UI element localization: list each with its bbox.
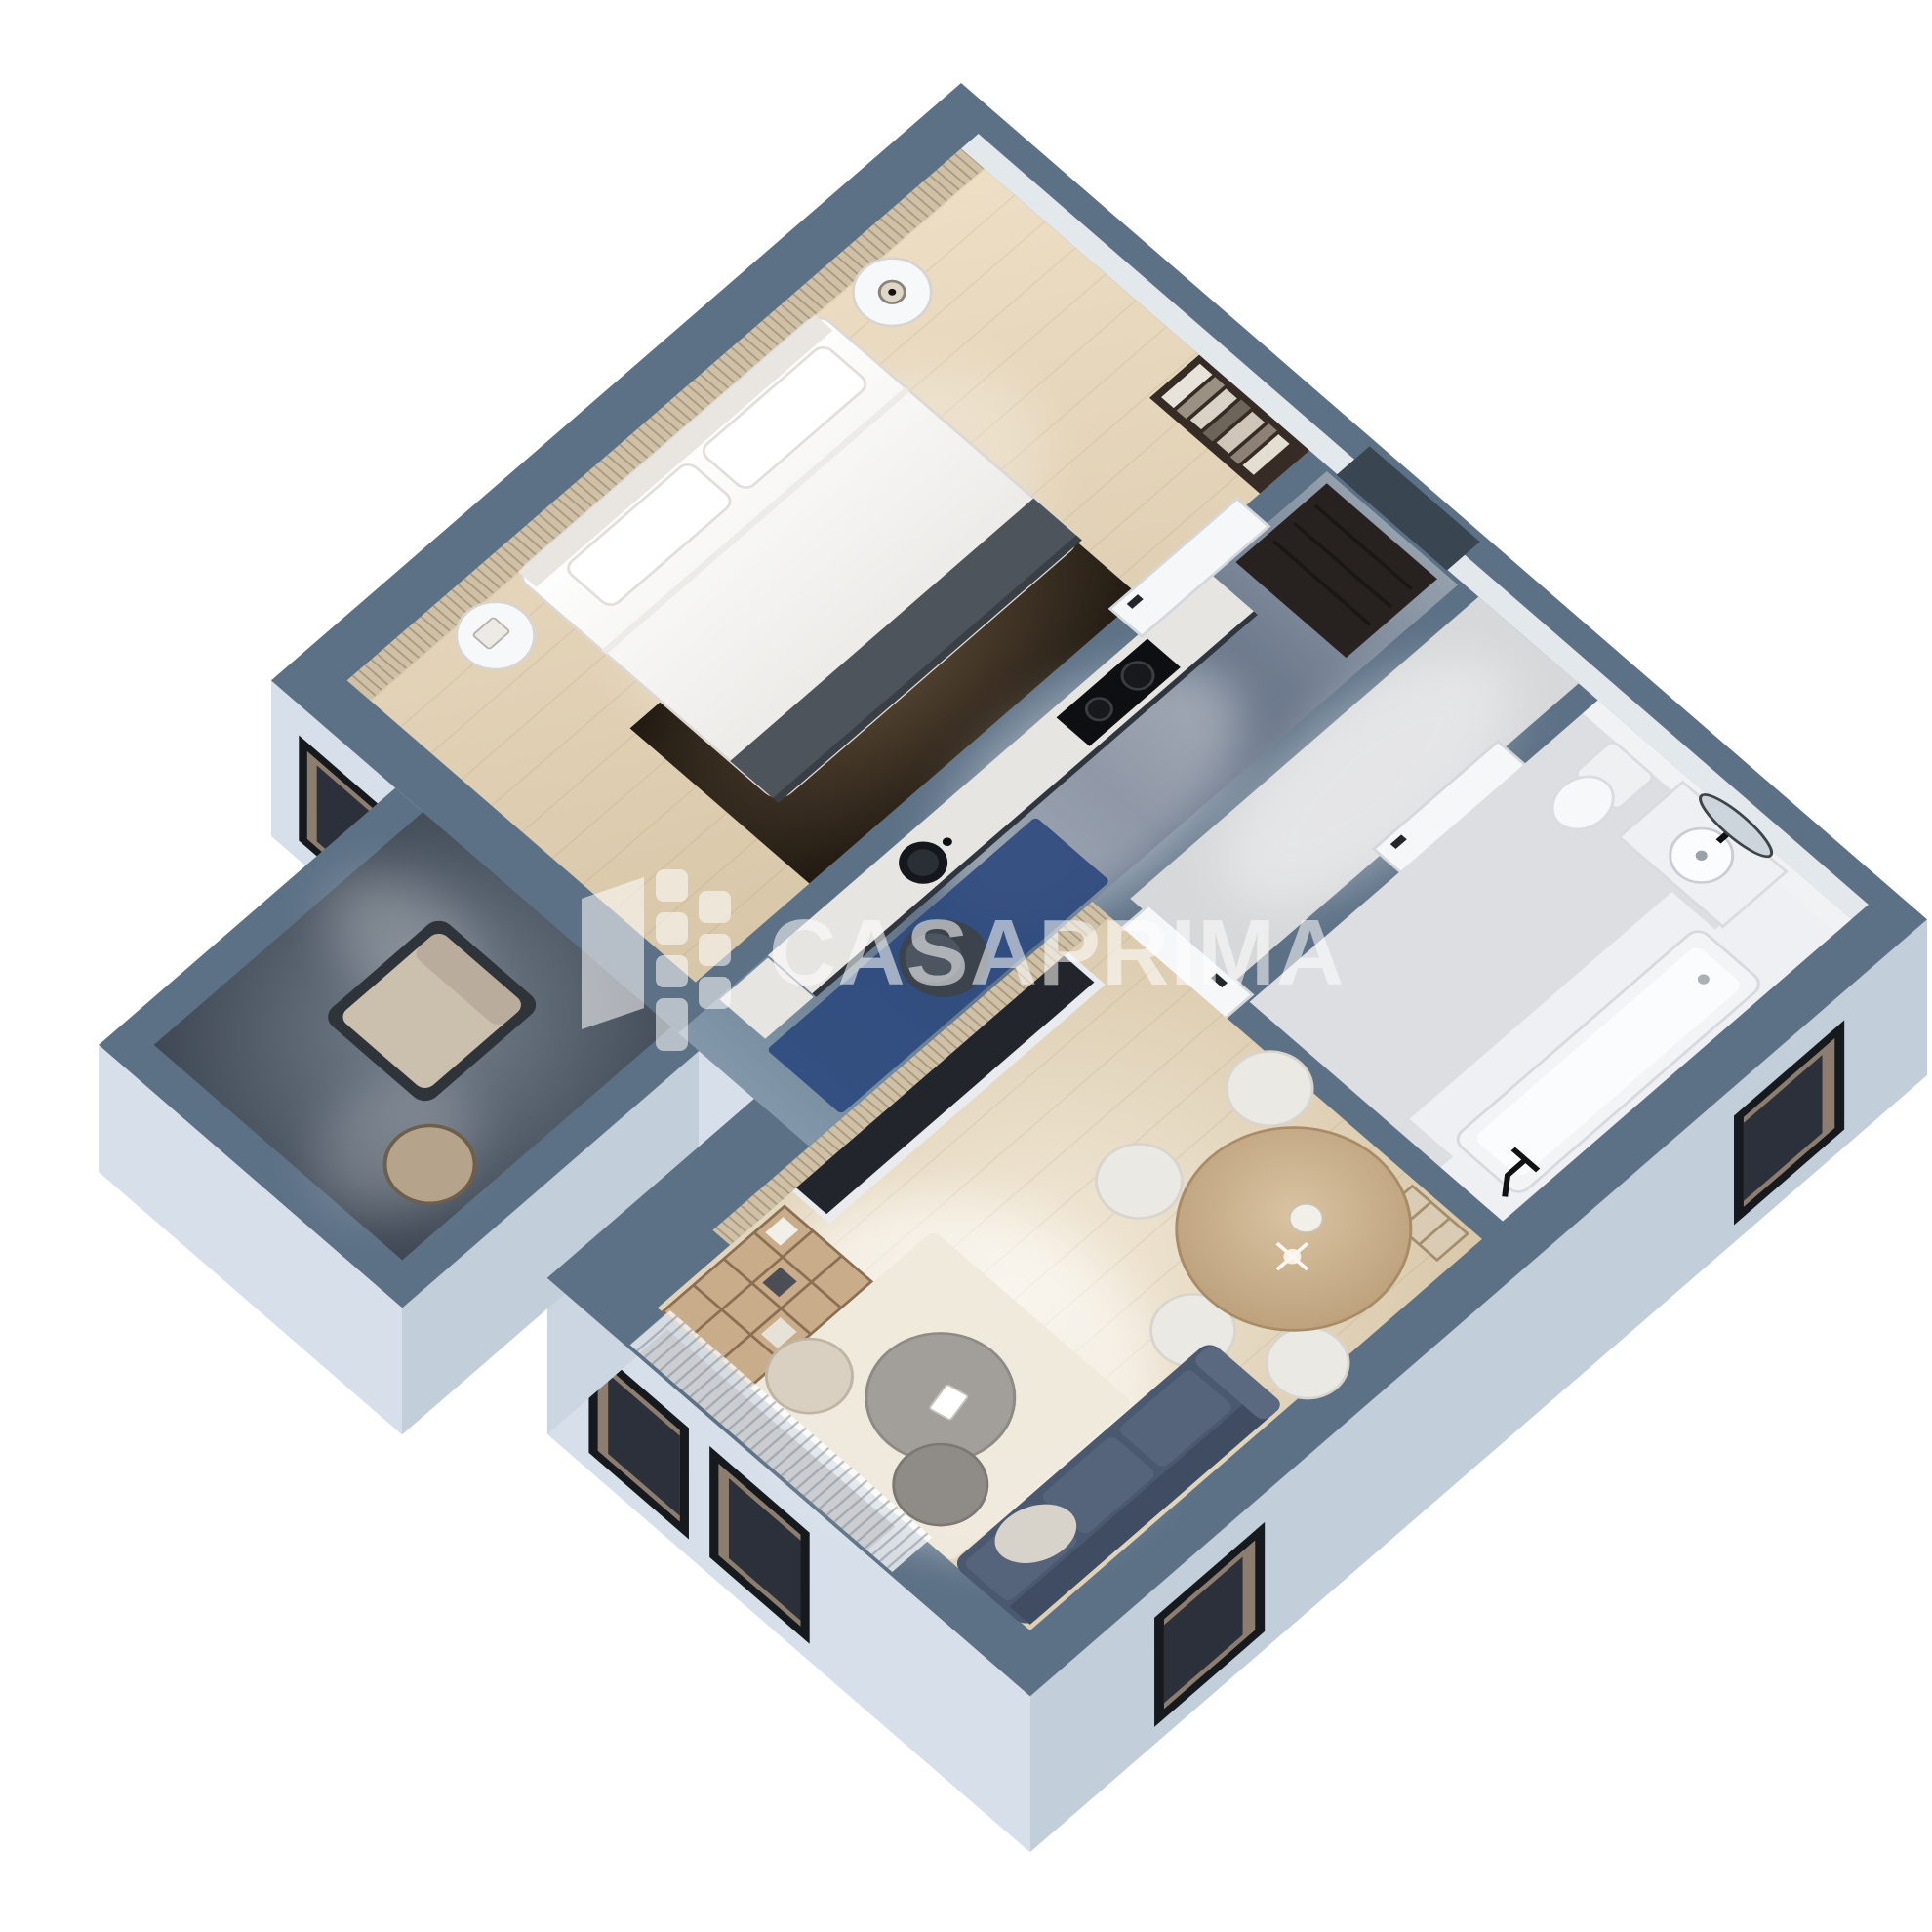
floor-plan-scene: CASAPRIMA [0,0,1932,1932]
floor-plan-render [0,0,1932,1932]
floor-plan-top [0,83,1927,1774]
